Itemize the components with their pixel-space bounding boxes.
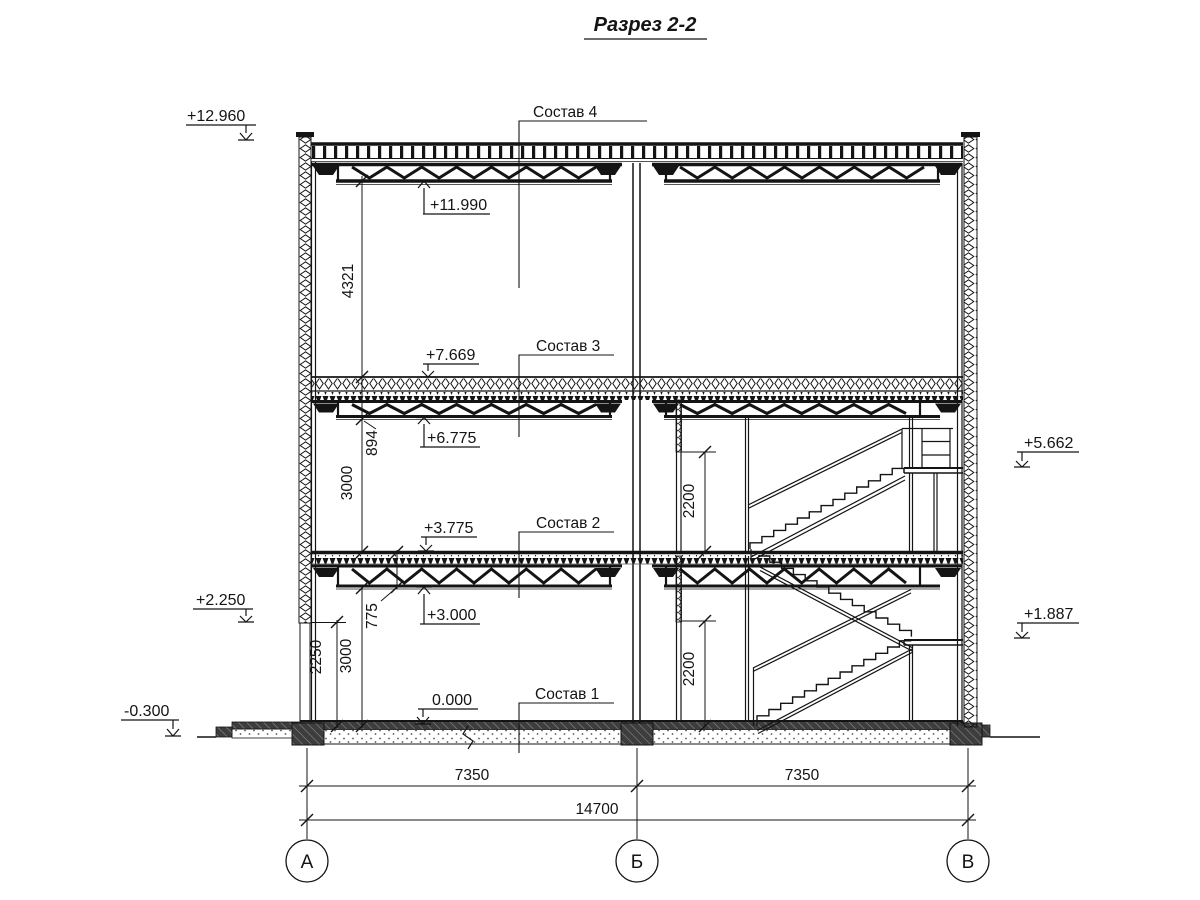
dim-2250-label: 2250 bbox=[308, 639, 325, 674]
axis-v-label: В bbox=[962, 852, 975, 873]
elevation-5662-label: +5.662 bbox=[1024, 435, 1073, 452]
dim-2200-upper-label: 2200 bbox=[681, 483, 698, 518]
elevation-0000-label: 0.000 bbox=[432, 692, 472, 709]
sostav2-label: Состав 2 bbox=[536, 515, 600, 532]
elev-mark-1887 bbox=[1014, 623, 1079, 638]
exterior-walls bbox=[296, 132, 980, 727]
floor2-assembly bbox=[311, 553, 963, 590]
drawing-title: Разрез 2-2 bbox=[594, 14, 697, 36]
elevation-11990-label: +11.990 bbox=[430, 197, 487, 214]
parapet-cap-left bbox=[296, 132, 314, 137]
staircase bbox=[748, 418, 963, 734]
dim-3000-lower-label: 3000 bbox=[338, 638, 355, 673]
elevation-7669-label: +7.669 bbox=[426, 347, 475, 364]
dim-2200-lower-label: 2200 bbox=[681, 651, 698, 686]
floor3-assembly bbox=[311, 377, 963, 420]
sostav4-label: Состав 4 bbox=[533, 104, 598, 121]
elevation-3775-label: +3.775 bbox=[424, 520, 473, 537]
roof-truss-left bbox=[313, 165, 621, 180]
floor3-truss-right bbox=[653, 403, 961, 416]
dim-4321-label: 4321 bbox=[340, 264, 357, 298]
elev-mark-2250 bbox=[193, 609, 254, 622]
section-drawing-svg: Разрез 2-2 +12.960 +11.990 +7.669 +6.775… bbox=[0, 0, 1200, 900]
stair-railing-lower bbox=[753, 590, 911, 669]
callout-leaders bbox=[519, 121, 647, 753]
wall-a bbox=[299, 137, 311, 623]
roof-assembly bbox=[311, 144, 963, 185]
elev-mark-m0300 bbox=[121, 720, 181, 736]
elev-mark-5662 bbox=[1014, 452, 1079, 467]
ground-slab bbox=[197, 721, 1040, 749]
columns bbox=[312, 162, 963, 726]
dim-775-label: 775 bbox=[364, 603, 381, 629]
elevation-12960-label: +12.960 bbox=[187, 108, 245, 125]
elevation-6775-label: +6.775 bbox=[427, 430, 476, 447]
sostav3-label: Состав 3 bbox=[536, 338, 600, 355]
parapet-cap-right bbox=[961, 132, 980, 137]
floor3-truss-left bbox=[313, 403, 621, 416]
stair-flight-lower1 bbox=[757, 641, 911, 722]
stair-flight-upper bbox=[750, 468, 904, 549]
elevation-2250-label: +2.250 bbox=[196, 592, 245, 609]
roof-truss-right bbox=[653, 165, 961, 180]
foundation-pad-a bbox=[292, 723, 324, 745]
elevation-m0300-label: -0.300 bbox=[124, 703, 169, 720]
dim-7350-right-label: 7350 bbox=[785, 767, 820, 784]
elevation-1887-label: +1.887 bbox=[1024, 606, 1073, 623]
elev-mark-12960 bbox=[186, 125, 256, 140]
floor2-truss-left bbox=[313, 567, 621, 585]
dim-14700-label: 14700 bbox=[575, 801, 618, 818]
dim-3000-upper-label: 3000 bbox=[339, 465, 356, 500]
dim-894-label: 894 bbox=[364, 430, 381, 456]
floor2-truss-right bbox=[653, 567, 961, 585]
elev-mark-3775 bbox=[418, 537, 477, 551]
sostav1-label: Состав 1 bbox=[535, 686, 599, 703]
axis-b-label: Б bbox=[631, 852, 643, 873]
axis-a-label: А bbox=[301, 852, 314, 873]
drawing-canvas: Разрез 2-2 +12.960 +11.990 +7.669 +6.775… bbox=[0, 0, 1200, 900]
dim-7350-left-label: 7350 bbox=[455, 767, 490, 784]
elev-mark-7669 bbox=[420, 364, 479, 377]
wall-v bbox=[964, 137, 977, 727]
foundation-pad-b bbox=[621, 723, 653, 745]
elevation-3000-label: +3.000 bbox=[427, 607, 476, 624]
